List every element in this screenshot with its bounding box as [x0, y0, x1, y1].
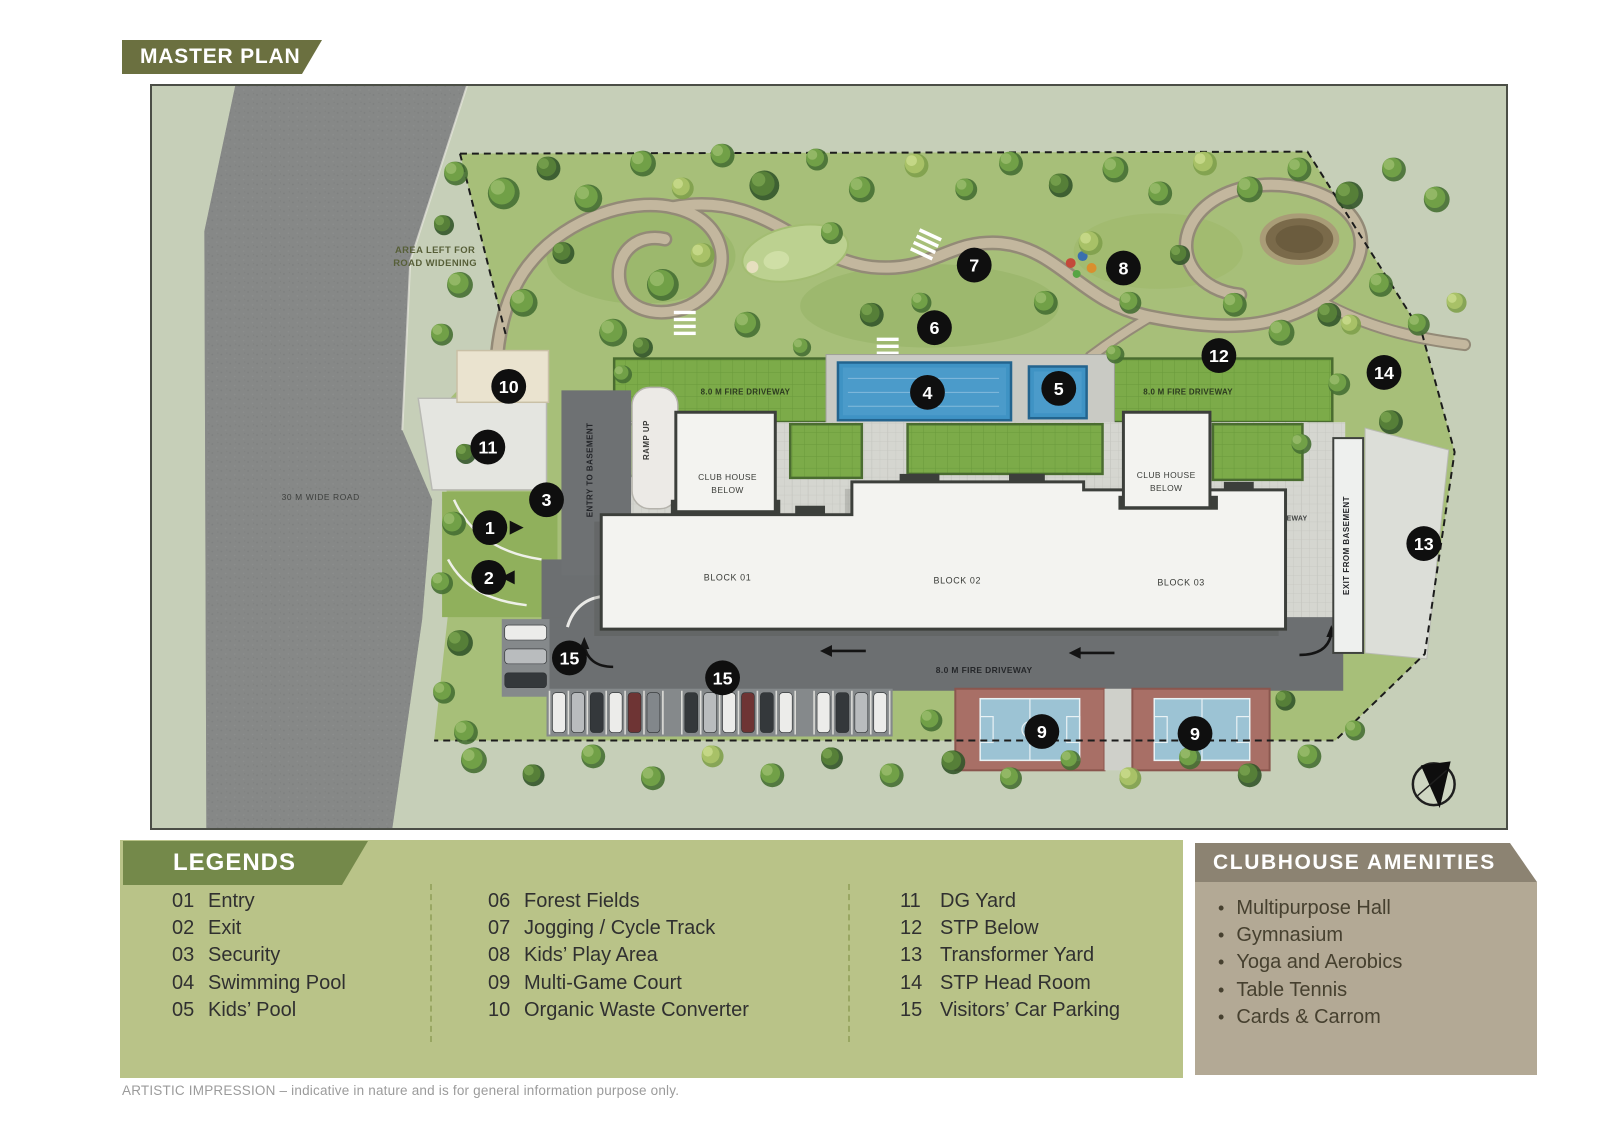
amenity-item: Table Tennis [1195, 977, 1537, 1004]
tree-icon [1275, 691, 1295, 711]
tree-icon [599, 319, 627, 347]
tree-icon [860, 303, 884, 327]
legend-item: 01Entry [172, 888, 346, 915]
tree-icon [488, 178, 520, 210]
tree-icon [955, 178, 977, 200]
legend-item-label: Security [208, 944, 280, 966]
tree-icon [1193, 152, 1217, 176]
building-tooth [1009, 474, 1045, 483]
page-title: MASTER PLAN [140, 45, 300, 68]
legend-item-label: Kids’ Play Area [524, 944, 658, 966]
marker-multi-game-court-1: 9 [1024, 714, 1059, 749]
block-01-label: BLOCK 01 [704, 572, 752, 582]
parked-car [609, 693, 622, 733]
tree-icon [431, 572, 453, 594]
tree-icon [552, 242, 574, 264]
tree-icon [1317, 303, 1341, 327]
amenity-item: Yoga and Aerobics [1195, 949, 1537, 976]
basement-entry-label: ENTRY TO BASEMENT [585, 423, 594, 518]
tree-icon [523, 764, 545, 786]
svg-text:2: 2 [484, 568, 494, 588]
marker-swimming-pool: 4 [910, 375, 945, 410]
clubhouse-label-line1: CLUB HOUSE [1137, 470, 1196, 480]
parked-car [647, 693, 660, 733]
svg-text:12: 12 [1209, 346, 1229, 366]
site-plan-map: 30 M WIDE ROAD AREA LEFT FOR ROAD WIDENI… [150, 84, 1508, 830]
legend-column-3: 11DG Yard 12STP Below 13Transformer Yard… [900, 888, 1120, 1024]
legend-item-label: Exit [208, 917, 241, 939]
disclaimer-text: ARTISTIC IMPRESSION – indicative in natu… [122, 1083, 679, 1098]
clubhouse-label-line2: BELOW [1150, 483, 1182, 493]
legend-item: 06Forest Fields [488, 888, 749, 915]
legend-item: 05Kids’ Pool [172, 997, 346, 1024]
clubhouse-label-line2: BELOW [711, 485, 743, 495]
tree-icon [1061, 750, 1081, 770]
clubhouse-below-west: CLUB HOUSE BELOW [676, 412, 775, 511]
legend-item: 15Visitors’ Car Parking [900, 997, 1120, 1024]
tree-icon [647, 269, 679, 301]
parked-car [704, 693, 717, 733]
tree-icon [941, 750, 965, 774]
tree-icon [1345, 720, 1365, 740]
legend-item-label: Multi-Game Court [524, 972, 682, 994]
marker-security: 3 [529, 482, 564, 517]
tree-icon [1369, 273, 1393, 297]
legend-item-number: 03 [172, 942, 200, 969]
tree-icon [641, 766, 665, 790]
tree-icon [442, 512, 466, 536]
building-tooth [795, 506, 825, 516]
tree-icon [806, 149, 828, 171]
tree-icon [1382, 158, 1406, 182]
tree-icon [1170, 245, 1190, 265]
legend-item-number: 01 [172, 888, 200, 915]
legend-item-number: 02 [172, 915, 200, 942]
block-03-label: BLOCK 03 [1157, 577, 1205, 587]
tree-icon [1049, 174, 1073, 198]
tree-icon [1297, 744, 1321, 768]
parked-car [741, 693, 754, 733]
legend-item-label: Forest Fields [524, 890, 640, 912]
legend-item: 10Organic Waste Converter [488, 997, 749, 1024]
tree-icon [434, 215, 454, 235]
clubhouse-amenities-title: CLUBHOUSE AMENITIES [1213, 851, 1496, 874]
clubhouse-amenities-panel: Multipurpose Hall Gymnasium Yoga and Aer… [1195, 882, 1537, 1075]
legend-item-label: STP Below [940, 917, 1039, 939]
parked-car [855, 693, 868, 733]
svg-text:5: 5 [1054, 379, 1064, 399]
amenities-list: Multipurpose Hall Gymnasium Yoga and Aer… [1195, 882, 1537, 1031]
tree-icon [1288, 158, 1312, 182]
legend-item: 04Swimming Pool [172, 970, 346, 997]
parked-car [571, 693, 584, 733]
legend-item-number: 06 [488, 888, 516, 915]
clubhouse-amenities-header: CLUBHOUSE AMENITIES [1195, 843, 1537, 882]
legend-item: 11DG Yard [900, 888, 1120, 915]
building-tooth [1224, 482, 1254, 491]
legend-item-number: 10 [488, 997, 516, 1024]
legend-item-number: 04 [172, 970, 200, 997]
tree-icon [849, 177, 875, 203]
tree-icon [1148, 181, 1172, 205]
building-tooth [900, 474, 940, 483]
marker-entry: 1 [472, 510, 507, 545]
tree-icon [630, 151, 656, 177]
site-plan-svg: 30 M WIDE ROAD AREA LEFT FOR ROAD WIDENI… [152, 86, 1506, 828]
legend-item: 02Exit [172, 915, 346, 942]
marker-forest-fields: 6 [917, 310, 952, 345]
basement-exit-label: EXIT FROM BASEMENT [1342, 496, 1351, 595]
legend-item-label: STP Head Room [940, 972, 1091, 994]
svg-text:13: 13 [1414, 534, 1434, 554]
marker-kids-pool: 5 [1041, 371, 1076, 406]
svg-text:10: 10 [499, 377, 519, 397]
parked-car [505, 673, 547, 688]
parked-car [760, 693, 773, 733]
parked-car [874, 693, 887, 733]
svg-text:6: 6 [929, 318, 939, 338]
legend-item-number: 09 [488, 970, 516, 997]
tree-icon [447, 272, 473, 298]
marker-exit: 2 [471, 560, 506, 595]
legend-item: 07Jogging / Cycle Track [488, 915, 749, 942]
legend-divider [848, 884, 850, 1042]
tree-icon [999, 152, 1023, 176]
amenity-item: Cards & Carrom [1195, 1004, 1537, 1031]
legend-divider [430, 884, 432, 1042]
legend-item-label: Organic Waste Converter [524, 999, 749, 1021]
master-plan-page: MASTER PLAN [0, 0, 1600, 1132]
tree-icon [447, 630, 473, 656]
legend-item-number: 05 [172, 997, 200, 1024]
tree-icon [905, 154, 929, 178]
svg-text:8: 8 [1118, 258, 1128, 278]
legend-item-number: 07 [488, 915, 516, 942]
fire-driveway-label-bottom: 8.0 M FIRE DRIVEWAY [936, 665, 1033, 675]
sand-pit [746, 261, 758, 273]
tree-icon [1237, 177, 1263, 203]
tree-icon [920, 710, 942, 732]
legend-item-number: 14 [900, 970, 928, 997]
marker-organic-waste-converter: 10 [491, 369, 526, 404]
legend-item-label: DG Yard [940, 890, 1016, 912]
svg-text:9: 9 [1037, 722, 1047, 742]
legend-item-label: Entry [208, 890, 255, 912]
pond [1260, 213, 1340, 265]
legends-title-banner: LEGENDS [123, 841, 368, 885]
clubhouse-below-east: CLUB HOUSE BELOW [1123, 412, 1210, 507]
tree-icon [461, 747, 487, 773]
legend-column-1: 01Entry 02Exit 03Security 04Swimming Poo… [172, 888, 346, 1024]
marker-visitors-parking-1: 15 [552, 641, 587, 676]
tree-icon [1341, 315, 1361, 335]
legend-column-2: 06Forest Fields 07Jogging / Cycle Track … [488, 888, 749, 1024]
svg-text:14: 14 [1374, 363, 1394, 383]
svg-text:3: 3 [542, 490, 552, 510]
tree-icon [581, 744, 605, 768]
parked-car [685, 693, 698, 733]
parked-car [552, 693, 565, 733]
ramp-up [632, 387, 678, 508]
legend-item: 12STP Below [900, 915, 1120, 942]
svg-text:11: 11 [478, 438, 497, 458]
road-widening-label-line2: ROAD WIDENING [393, 258, 477, 269]
road-label: 30 M WIDE ROAD [282, 492, 360, 502]
tree-icon [911, 293, 931, 313]
parked-car [628, 693, 641, 733]
tree-icon [1335, 181, 1363, 209]
tree-icon [711, 144, 735, 168]
marker-dg-yard: 11 [470, 430, 505, 465]
legend-item-number: 12 [900, 915, 928, 942]
tree-icon [821, 222, 843, 244]
tree-icon [574, 184, 602, 212]
legend-item-number: 15 [900, 997, 928, 1024]
marker-jogging-track: 7 [957, 248, 992, 283]
fire-driveway-label: 8.0 M FIRE DRIVEWAY [701, 387, 791, 396]
svg-text:1: 1 [485, 518, 495, 538]
tree-icon [1079, 231, 1103, 255]
svg-text:9: 9 [1190, 724, 1200, 744]
svg-text:4: 4 [922, 383, 932, 403]
svg-text:15: 15 [559, 648, 579, 668]
legend-item: 14STP Head Room [900, 970, 1120, 997]
legend-item-label: Jogging / Cycle Track [524, 917, 715, 939]
tree-icon [1223, 293, 1247, 317]
tree-icon [1034, 291, 1058, 315]
tree-icon [691, 243, 715, 267]
tree-icon [1000, 767, 1022, 789]
tree-icon [1119, 767, 1141, 789]
tree-icon [749, 171, 779, 201]
legend-item-label: Swimming Pool [208, 972, 346, 994]
marker-transformer-yard: 13 [1406, 526, 1441, 561]
tree-icon [1238, 763, 1262, 787]
svg-text:7: 7 [969, 256, 979, 276]
legend-item-label: Visitors’ Car Parking [940, 999, 1120, 1021]
legend-item-number: 08 [488, 942, 516, 969]
tree-icon [454, 721, 478, 745]
parked-car [817, 693, 830, 733]
court-divider-paving [1105, 689, 1133, 771]
parked-car [505, 649, 547, 664]
legend-item: 08Kids’ Play Area [488, 942, 749, 969]
legend-item-number: 13 [900, 942, 928, 969]
legend-item-label: Kids’ Pool [208, 999, 296, 1021]
marker-multi-game-court-2: 9 [1178, 716, 1213, 751]
parked-car [723, 693, 736, 733]
clubhouse-label-line1: CLUB HOUSE [698, 472, 757, 482]
tree-icon [735, 312, 761, 338]
legends-title: LEGENDS [173, 849, 296, 876]
ramp-up-label: RAMP UP [642, 420, 651, 460]
tree-icon [1328, 373, 1350, 395]
legend-item-number: 11 [900, 888, 928, 915]
tree-icon [760, 763, 784, 787]
tree-icon [1408, 314, 1430, 336]
parked-car [779, 693, 792, 733]
marker-kids-play-area: 8 [1106, 251, 1141, 286]
marker-stp-below: 12 [1201, 338, 1236, 373]
tree-icon [431, 324, 453, 346]
tree-icon [1103, 157, 1129, 183]
road-widening-label-line1: AREA LEFT FOR [395, 245, 475, 256]
tree-icon [1446, 293, 1466, 313]
legend-item: 09Multi-Game Court [488, 970, 749, 997]
parked-car [590, 693, 603, 733]
tree-icon [537, 157, 561, 181]
tree-icon [672, 177, 694, 199]
legend-item: 03Security [172, 942, 346, 969]
block-02-label: BLOCK 02 [934, 575, 982, 585]
tree-icon [702, 745, 724, 767]
page-title-banner: MASTER PLAN [122, 40, 322, 74]
tree-icon [1269, 320, 1295, 346]
tree-icon [1291, 434, 1311, 454]
tree-icon [433, 682, 455, 704]
tree-icon [633, 337, 653, 357]
tree-icon [444, 162, 468, 186]
tree-icon [880, 763, 904, 787]
fire-driveway-label: 8.0 M FIRE DRIVEWAY [1143, 387, 1233, 396]
legend-item-label: Transformer Yard [940, 944, 1094, 966]
tree-icon [1379, 410, 1403, 434]
parked-car [836, 693, 849, 733]
marker-stp-head-room: 14 [1367, 355, 1402, 390]
amenity-item: Multipurpose Hall [1195, 895, 1537, 922]
legend-item: 13Transformer Yard [900, 942, 1120, 969]
tree-icon [821, 747, 843, 769]
svg-text:15: 15 [713, 668, 733, 688]
tree-icon [510, 289, 538, 317]
tree-icon [1424, 186, 1450, 212]
marker-visitors-parking-2: 15 [705, 660, 740, 695]
tree-icon [1119, 292, 1141, 314]
parked-car [505, 625, 547, 640]
amenity-item: Gymnasium [1195, 922, 1537, 949]
